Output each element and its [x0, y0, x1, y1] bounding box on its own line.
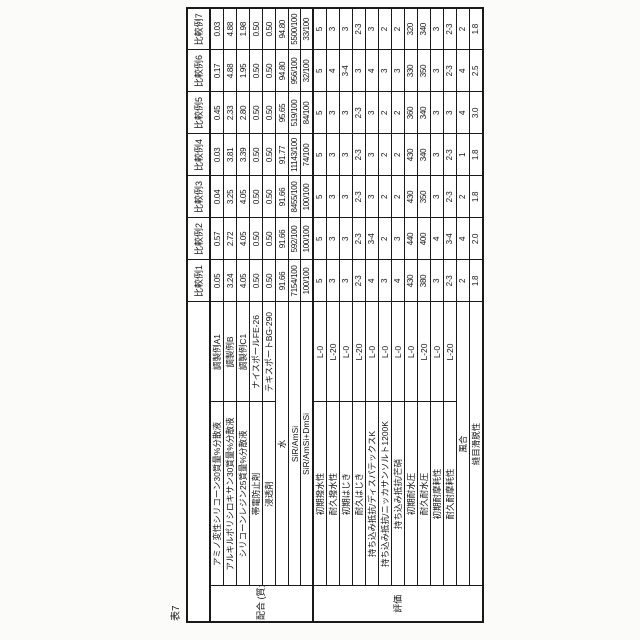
cell-value: 3 [443, 92, 456, 134]
cell-value: 2 [391, 8, 404, 50]
row-sub-label: L-0 [391, 302, 404, 402]
table-row: 配合 (質量部)アミノ変性シリコーン30質量%分散液調製例A10.050.570… [210, 8, 224, 622]
cell-value: 4 [430, 218, 443, 260]
row-sub-label: L-0 [430, 302, 443, 402]
row-sub-label: L-20 [417, 302, 430, 402]
cell-value: 380 [417, 260, 430, 302]
cell-value: 3 [430, 92, 443, 134]
table-header: 比較例1比較例2比較例3比較例4比較例5比較例6比較例7 [187, 8, 210, 622]
cell-value: 2 [456, 8, 469, 50]
cell-value: 2 [391, 134, 404, 176]
table-row: 初期耐水圧L-0430440430430360330320 [404, 8, 417, 622]
cell-value: 0.50 [250, 92, 263, 134]
cell-value: 350 [417, 50, 430, 92]
table-row: 水91.6691.6691.6691.7795.6594.8094.80 [276, 8, 289, 622]
row-sub-label: L-0 [404, 302, 417, 402]
cell-value: 91.66 [276, 218, 289, 260]
cell-value: 0.50 [250, 8, 263, 50]
row-name: 初期はじき [339, 402, 352, 586]
table-row: アルキルポリシロキサン30質量%分散液調製例B3.242.723.253.812… [224, 8, 237, 622]
cell-value: 350 [417, 176, 430, 218]
cell-value: 3 [339, 134, 352, 176]
cell-value: 3 [430, 176, 443, 218]
row-name: 持ち込み抵抗/ディスパテックスK [365, 402, 378, 586]
cell-value: 1.8 [469, 260, 483, 302]
table-row: 耐久耐水圧L-20380400350340340350340 [417, 8, 430, 622]
cell-value: 0.50 [250, 50, 263, 92]
cell-value: 2-3 [352, 134, 365, 176]
cell-value: 3 [430, 8, 443, 50]
cell-value: 3.39 [237, 134, 250, 176]
cell-value: 91.66 [276, 176, 289, 218]
cell-value: 3 [326, 92, 339, 134]
row-name: シリコーンレジン25質量%分散液 [237, 402, 250, 586]
cell-value: 4.88 [224, 50, 237, 92]
cell-value: 1.8 [469, 8, 483, 50]
cell-value: 0.50 [263, 8, 276, 50]
table-row: 縫目滑脱性1.82.01.81.83.02.51.8 [469, 8, 483, 622]
cell-value: 94.80 [276, 50, 289, 92]
cell-value: 2-3 [352, 260, 365, 302]
cell-value: 2 [456, 260, 469, 302]
row-sub-label: L-20 [326, 302, 339, 402]
row-name: 風合 [456, 302, 469, 586]
cell-value: 84/100 [301, 92, 313, 134]
cell-value: 3-4 [443, 218, 456, 260]
cell-value: 5500/100 [289, 8, 301, 50]
row-sub-label: ナイスポールFE-26 [250, 302, 263, 402]
cell-value: 0.50 [263, 218, 276, 260]
table-row: 帯電防止剤ナイスポールFE-260.500.500.500.500.500.50… [250, 8, 263, 622]
cell-value: 2-3 [352, 92, 365, 134]
cell-value: 3 [326, 260, 339, 302]
cell-value: 11143/100 [289, 134, 301, 176]
cell-value: 592/100 [289, 218, 301, 260]
cell-value: 3 [326, 8, 339, 50]
cell-value: 0.50 [263, 134, 276, 176]
cell-value: 0.57 [210, 218, 224, 260]
row-name: SiR/AmSi [289, 302, 301, 586]
cell-value: 95.65 [276, 92, 289, 134]
cell-value: 340 [417, 8, 430, 50]
cell-value: 340 [417, 134, 430, 176]
table-row: 耐久耐摩耗性L-202-33-42-32-332-32-3 [443, 8, 456, 622]
cell-value: 91.77 [276, 134, 289, 176]
cell-value: 4 [456, 218, 469, 260]
column-header: 比較例1 [187, 260, 210, 302]
cell-value: 0.50 [250, 176, 263, 218]
cell-value: 0.05 [210, 260, 224, 302]
cell-value: 2 [378, 218, 391, 260]
cell-value: 2-3 [443, 8, 456, 50]
cell-value: 5 [313, 176, 327, 218]
cell-value: 4.05 [237, 176, 250, 218]
cell-value: 1 [456, 134, 469, 176]
cell-value: 3 [339, 176, 352, 218]
cell-value: 4 [456, 50, 469, 92]
cell-value: 33/100 [301, 8, 313, 50]
cell-value: 100/100 [301, 176, 313, 218]
cell-value: 2 [378, 134, 391, 176]
cell-value: 2 [378, 92, 391, 134]
row-sub-label: L-20 [352, 302, 365, 402]
cell-value: 0.50 [263, 176, 276, 218]
cell-value: 32/100 [301, 50, 313, 92]
cell-value: 430 [404, 134, 417, 176]
cell-value: 5 [313, 8, 327, 50]
cell-value: 5 [313, 92, 327, 134]
row-sub-label: 調製例C1 [237, 302, 250, 402]
cell-value: 1.98 [237, 8, 250, 50]
table-row: 耐久はじきL-202-32-32-32-32-332-3 [352, 8, 365, 622]
cell-value: 4 [456, 92, 469, 134]
row-name: 耐久耐摩耗性 [443, 402, 456, 586]
row-sub-label: L-0 [365, 302, 378, 402]
row-name: 浸透剤 [263, 402, 276, 586]
cell-value: 2-3 [352, 8, 365, 50]
cell-value: 5 [313, 134, 327, 176]
column-header: 比較例7 [187, 8, 210, 50]
row-name: 水 [276, 302, 289, 586]
cell-value: 3 [339, 8, 352, 50]
row-name: 耐久はじき [352, 402, 365, 586]
row-sub-label: 調製例A1 [210, 302, 224, 402]
cell-value: 4 [326, 50, 339, 92]
column-header: 比較例5 [187, 92, 210, 134]
cell-value: 4.88 [224, 8, 237, 50]
row-name: 初期撥水性 [313, 402, 327, 586]
cell-value: 2-3 [352, 176, 365, 218]
table-row: 初期耐摩耗性L-03433333 [430, 8, 443, 622]
table-row: 評価初期撥水性L-05555555 [313, 8, 327, 622]
cell-value: 1.95 [237, 50, 250, 92]
row-name: 持ち込み抵抗/ニッカサンソルト1200K [378, 402, 391, 586]
table-row: 初期はじきL-0333333-43 [339, 8, 352, 622]
cell-value: 2 [456, 176, 469, 218]
cell-value: 1.8 [469, 176, 483, 218]
cell-value: 0.50 [263, 50, 276, 92]
cell-value: 3 [430, 134, 443, 176]
cell-value: 2.80 [237, 92, 250, 134]
row-name: 耐久耐水圧 [417, 402, 430, 586]
cell-value: 5 [313, 260, 327, 302]
cell-value: 360 [404, 92, 417, 134]
cell-value: 4 [391, 260, 404, 302]
cell-value: 3 [391, 50, 404, 92]
cell-value: 8455/100 [289, 176, 301, 218]
row-name: アミノ変性シリコーン30質量%分散液 [210, 402, 224, 586]
row-name: 帯電防止剤 [250, 402, 263, 586]
row-sub-label: L-0 [339, 302, 352, 402]
cell-value: 2-3 [443, 176, 456, 218]
column-header: 比較例6 [187, 50, 210, 92]
cell-value: 3 [391, 218, 404, 260]
cell-value: 3 [326, 134, 339, 176]
cell-value: 3 [378, 50, 391, 92]
cell-value: 74/100 [301, 134, 313, 176]
cell-value: 2-3 [352, 218, 365, 260]
cell-value: 2.33 [224, 92, 237, 134]
cell-value: 0.04 [210, 176, 224, 218]
cell-value: 3 [430, 50, 443, 92]
table-row: 持ち込み抵抗/芒硝L-04322232 [391, 8, 404, 622]
cell-value: 100/100 [301, 218, 313, 260]
cell-value: 94.80 [276, 8, 289, 50]
row-sub-label: テキスポートBG-290 [263, 302, 276, 402]
cell-value: 3 [339, 92, 352, 134]
column-header: 比較例3 [187, 176, 210, 218]
table-caption: 表7 [170, 7, 186, 623]
cell-value: 3-4 [365, 218, 378, 260]
cell-value: 5 [313, 218, 327, 260]
cell-value: 0.50 [250, 260, 263, 302]
cell-value: 1.8 [469, 134, 483, 176]
cell-value: 0.17 [210, 50, 224, 92]
header-corner-cell [187, 302, 210, 622]
row-name: SiR/AmSi+DmSi [301, 302, 313, 586]
row-sub-label: L-0 [313, 302, 327, 402]
cell-value: 4 [365, 260, 378, 302]
table-row: 浸透剤テキスポートBG-2900.500.500.500.500.500.500… [263, 8, 276, 622]
cell-value: 3 [378, 260, 391, 302]
cell-value: 3 [339, 218, 352, 260]
row-name: 持ち込み抵抗/芒硝 [391, 402, 404, 586]
row-name: 耐久撥水性 [326, 402, 339, 586]
row-name: 初期耐水圧 [404, 402, 417, 586]
cell-value: 0.50 [263, 92, 276, 134]
table-row: 耐久撥水性L-203333343 [326, 8, 339, 622]
row-sub-label: 調製例B [224, 302, 237, 402]
table-body: 配合 (質量部)アミノ変性シリコーン30質量%分散液調製例A10.050.570… [210, 8, 483, 622]
scanned-patent-page: { "caption": "表7", "columns": ["比較例1","比… [0, 0, 640, 640]
cell-value: 2.72 [224, 218, 237, 260]
cell-value: 3-4 [339, 50, 352, 92]
cell-value: 3 [326, 176, 339, 218]
cell-value: 3.24 [224, 260, 237, 302]
cell-value: 100/100 [301, 260, 313, 302]
cell-value: 3 [365, 92, 378, 134]
row-sub-label: L-0 [378, 302, 391, 402]
cell-value: 2.0 [469, 218, 483, 260]
cell-value: 3 [365, 134, 378, 176]
header-row: 比較例1比較例2比較例3比較例4比較例5比較例6比較例7 [187, 8, 210, 622]
cell-value: 430 [404, 260, 417, 302]
cell-value: 3 [365, 8, 378, 50]
cell-value: 340 [417, 92, 430, 134]
table-row: 持ち込み抵抗/ニッカサンソルト1200KL-03222232 [378, 8, 391, 622]
cell-value: 2.5 [469, 50, 483, 92]
cell-value: 0.50 [250, 218, 263, 260]
cell-value: 3 [326, 218, 339, 260]
cell-value: 400 [417, 218, 430, 260]
column-header: 比較例4 [187, 134, 210, 176]
row-name: 縫目滑脱性 [469, 302, 483, 586]
table-row: シリコーンレジン25質量%分散液調製例C14.054.054.053.392.8… [237, 8, 250, 622]
cell-value: 2-3 [443, 50, 456, 92]
cell-value: 4.05 [237, 218, 250, 260]
cell-value: 956/100 [289, 50, 301, 92]
cell-value: 2 [378, 8, 391, 50]
cell-value: 4.05 [237, 260, 250, 302]
cell-value: 2 [391, 92, 404, 134]
cell-value: 5 [313, 50, 327, 92]
cell-value: 0.03 [210, 8, 224, 50]
cell-value: 3.0 [469, 92, 483, 134]
cell-value: 0.50 [263, 260, 276, 302]
cell-value: 2 [391, 176, 404, 218]
cell-value: 2-3 [443, 260, 456, 302]
cell-value: 3 [352, 50, 365, 92]
cell-value: 0.45 [210, 92, 224, 134]
row-name: アルキルポリシロキサン30質量%分散液 [224, 402, 237, 586]
row-name: 初期耐摩耗性 [430, 402, 443, 586]
row-sub-label: L-20 [443, 302, 456, 402]
table-row: 風合2421442 [456, 8, 469, 622]
row-group-label: 評価 [313, 586, 483, 622]
cell-value: 2 [378, 176, 391, 218]
cell-value: 4 [365, 50, 378, 92]
table-row: 持ち込み抵抗/ディスパテックスKL-043-433343 [365, 8, 378, 622]
cell-value: 91.66 [276, 260, 289, 302]
cell-value: 430 [404, 176, 417, 218]
patent-table: 比較例1比較例2比較例3比較例4比較例5比較例6比較例7 配合 (質量部)アミノ… [186, 7, 484, 623]
cell-value: 2-3 [443, 134, 456, 176]
cell-value: 320 [404, 8, 417, 50]
cell-value: 519/100 [289, 92, 301, 134]
row-group-label: 配合 (質量部) [210, 586, 313, 622]
cell-value: 0.03 [210, 134, 224, 176]
cell-value: 330 [404, 50, 417, 92]
column-header: 比較例2 [187, 218, 210, 260]
cell-value: 3.25 [224, 176, 237, 218]
cell-value: 0.50 [250, 134, 263, 176]
cell-value: 3 [339, 260, 352, 302]
rotated-table-block: 表7 比較例1比較例2比較例3比較例4比較例5比較例6比較例7 配合 (質量部)… [170, 7, 462, 623]
cell-value: 3 [365, 176, 378, 218]
table-row: SiR/AmSi7154/100592/1008455/10011143/100… [289, 8, 301, 622]
cell-value: 3.81 [224, 134, 237, 176]
cell-value: 440 [404, 218, 417, 260]
cell-value: 7154/100 [289, 260, 301, 302]
cell-value: 3 [430, 260, 443, 302]
table-row: SiR/AmSi+DmSi100/100100/100100/10074/100… [301, 8, 313, 622]
